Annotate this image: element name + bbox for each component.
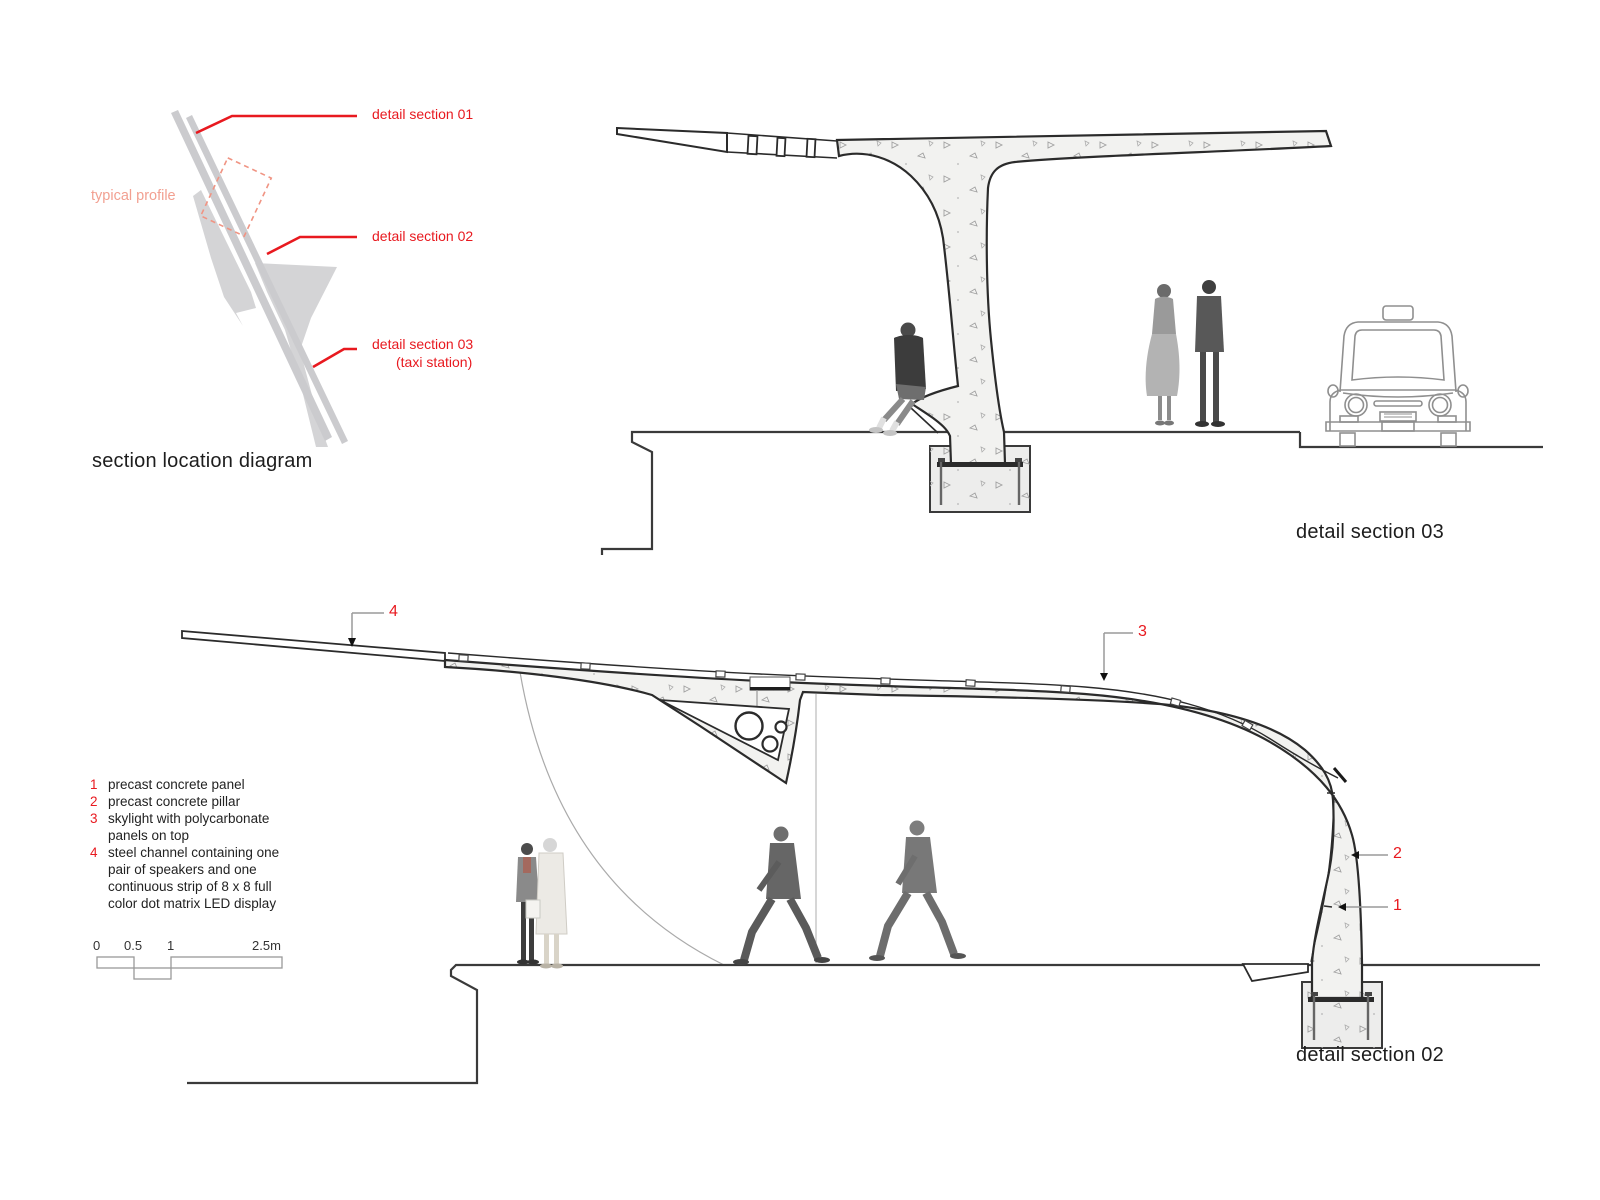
legend-item-number: 4 <box>90 844 102 861</box>
legend-item: 3 skylight with polycarbonate panels on … <box>90 810 305 844</box>
canopy-blade <box>617 128 727 152</box>
location-diagram-title: section location diagram <box>92 450 312 473</box>
legend-item-number: 2 <box>90 793 102 810</box>
callout-number-2: 2 <box>1393 845 1402 863</box>
legend-item-number: 1 <box>90 776 102 793</box>
scale-bar <box>97 957 282 979</box>
canopy-and-pillar <box>445 660 1362 998</box>
scale-tick-25m: 2.5m <box>252 938 281 953</box>
legend-item-text: steel channel containing one pair of spe… <box>108 844 292 912</box>
callout-arrowheads <box>348 638 1359 911</box>
legend-item: 4 steel channel containing one pair of s… <box>90 844 305 912</box>
callout-detail-section-01: detail section 01 <box>372 106 473 122</box>
callout-taxi-station: (taxi station) <box>396 354 472 370</box>
leader-section-03 <box>313 349 357 367</box>
callout-detail-section-03: detail section 03 <box>372 336 473 352</box>
architectural-sheet: typical profile detail section 01 detail… <box>0 0 1600 1200</box>
scale-tick-0: 0 <box>93 938 100 953</box>
speaker-conduit-small <box>776 722 787 733</box>
location-diagram <box>171 110 357 447</box>
legend-item: 2 precast concrete pillar <box>90 793 305 810</box>
canopy-footprint <box>255 263 337 447</box>
steel-channel-blade <box>182 631 445 661</box>
base-plate <box>1308 997 1374 1002</box>
road-ground-line <box>1300 432 1543 447</box>
callout-detail-section-02: detail section 02 <box>372 228 473 244</box>
drawing-layer <box>0 0 1600 1200</box>
legend-item: 1 precast concrete panel <box>90 776 305 793</box>
scale-tick-05: 0.5 <box>124 938 142 953</box>
section-03-title: detail section 03 <box>1296 521 1444 544</box>
sitting-person <box>869 323 926 437</box>
taxi-car <box>1326 306 1470 446</box>
standing-woman <box>1146 284 1180 426</box>
walking-man <box>869 821 966 962</box>
callout-number-3: 3 <box>1138 623 1147 641</box>
standing-man <box>1195 280 1225 427</box>
callout-number-4: 4 <box>389 603 398 621</box>
scale-tick-1: 1 <box>167 938 174 953</box>
drain-gutter <box>1243 964 1308 981</box>
speaker-conduit-medium <box>763 737 778 752</box>
detail-section-03-drawing <box>602 128 1543 555</box>
legend-item-text: precast concrete panel <box>108 776 292 793</box>
legend-item-text: precast concrete pillar <box>108 793 292 810</box>
legend: 1 precast concrete panel 2 precast concr… <box>90 776 305 912</box>
section-02-title: detail section 02 <box>1296 1044 1444 1067</box>
legend-item-number: 3 <box>90 810 102 827</box>
leader-section-02 <box>267 237 357 254</box>
legend-item-text: skylight with polycarbonate panels on to… <box>108 810 292 844</box>
leader-section-01 <box>196 116 357 133</box>
typical-profile-label: typical profile <box>91 188 176 204</box>
base-plate <box>937 462 1023 467</box>
detail-section-02-drawing <box>97 613 1540 1083</box>
callout-number-1: 1 <box>1393 897 1402 915</box>
speaker-conduit-large <box>736 713 763 740</box>
concrete-column <box>837 131 1331 464</box>
standing-women-pair <box>516 838 567 969</box>
